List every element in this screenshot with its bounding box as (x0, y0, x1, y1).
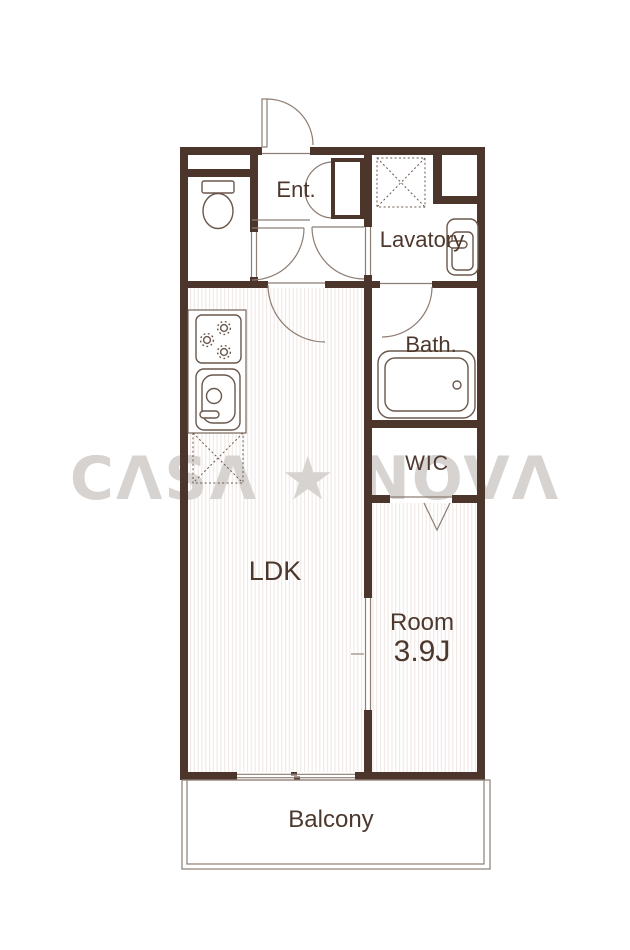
wall-ent-lavatory (364, 147, 372, 227)
shoe-cabinet-icon (333, 160, 362, 217)
sliding-door-cap-bottom (364, 710, 372, 714)
toilet-bowl (203, 194, 233, 229)
casa-nova-watermark: CΛSΛ ★ NOVΛ (70, 444, 560, 514)
bedroom-size-label: 3.9J (394, 635, 451, 668)
floorplan-canvas: CΛSΛ ★ NOVΛ (0, 0, 630, 950)
front-door-leaf (262, 99, 267, 147)
wic-label: WIC (405, 452, 449, 475)
wall-bottom-left (180, 772, 237, 780)
wall-ldk-top-left (180, 281, 268, 288)
lavatory-label: Lavatory (380, 227, 464, 252)
wall-wic-bottom-left (364, 495, 390, 503)
wall-top-right (310, 147, 485, 155)
stove-icon (196, 315, 241, 363)
wall-top-left (180, 147, 262, 155)
wall-ldk-bath-wic (364, 281, 372, 598)
wall-pipe-space-horiz (433, 196, 485, 204)
toilet-icon (202, 181, 234, 229)
wall-ldk-room-lower (364, 710, 372, 780)
sink-faucet (200, 411, 219, 418)
bathtub-icon (378, 351, 475, 418)
wall-left-outer (180, 147, 188, 780)
wall-pipe-space-vert (433, 147, 442, 204)
sliding-door-cap-top (364, 594, 372, 598)
toilet-tank (202, 181, 234, 193)
bath-label: Bath. (405, 332, 456, 357)
stove-top (196, 315, 241, 363)
balcony-label: Balcony (288, 806, 373, 833)
bedroom-label: Room (390, 609, 454, 636)
wall-bath-wic (364, 420, 485, 428)
sink-drain (207, 389, 222, 404)
wall-bath-top-right (432, 281, 485, 288)
wall-bottom-right (355, 772, 485, 780)
bathtub-drain (453, 381, 461, 389)
wall-wic-bottom-right (452, 495, 485, 503)
ldk-label: LDK (249, 556, 302, 586)
kitchen-sink-icon (196, 369, 240, 430)
floorplan-svg: CΛSΛ ★ NOVΛ (0, 0, 630, 950)
wall-toilet-top-inner (183, 169, 258, 177)
entrance-label: Ent. (276, 177, 315, 202)
wall-bath-top-left (364, 281, 380, 288)
wall-toilet-right (250, 147, 258, 232)
